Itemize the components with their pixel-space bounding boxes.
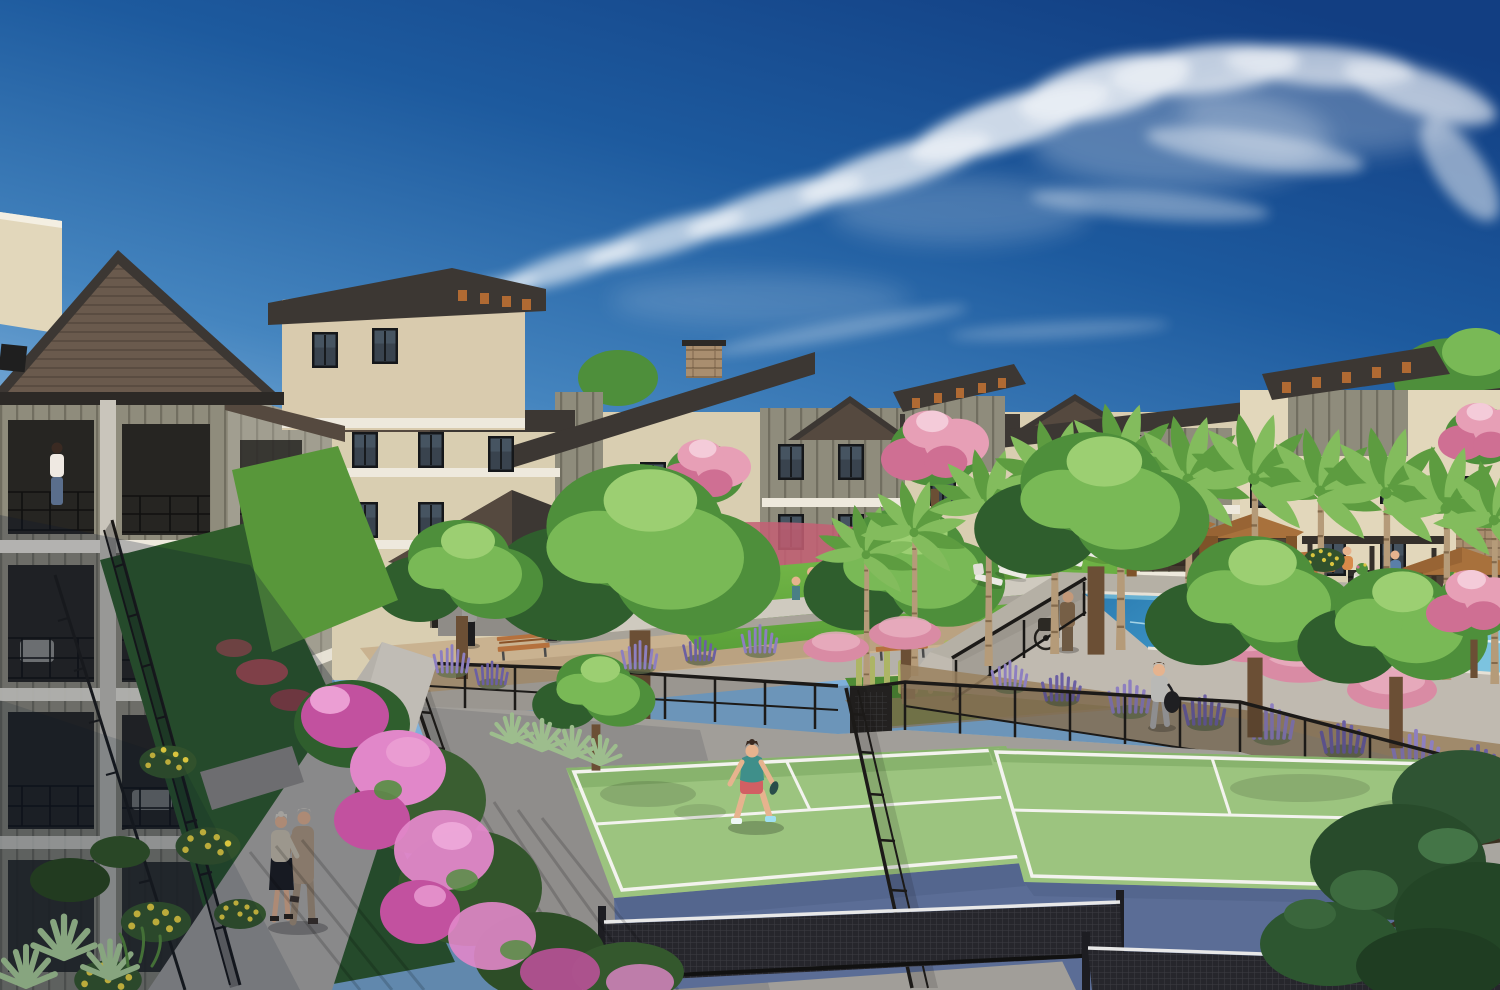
rendering-canvas <box>0 0 1500 990</box>
parapet <box>0 212 62 334</box>
lawn-kid <box>792 577 801 601</box>
stone-chimney <box>682 340 726 378</box>
community-rendering <box>0 0 1500 990</box>
roof-vent <box>0 344 27 373</box>
